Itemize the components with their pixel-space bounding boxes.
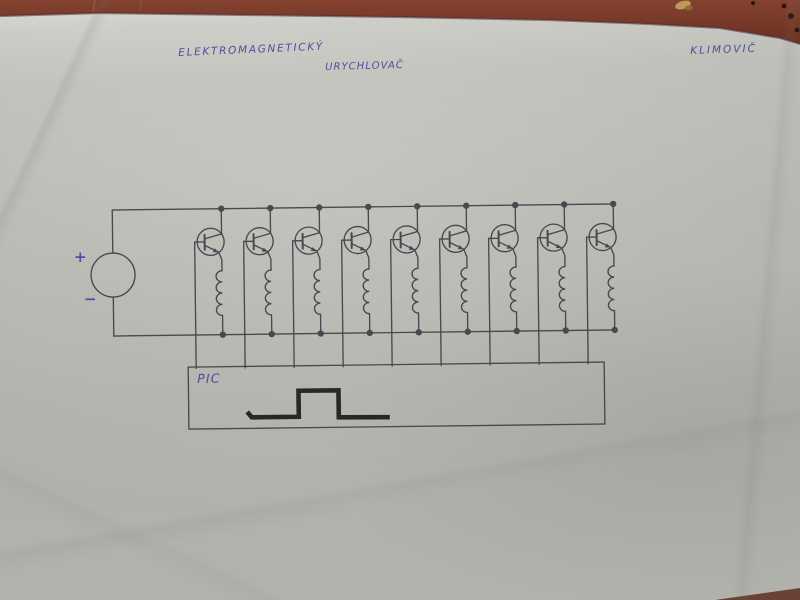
junction-dot-bottom [612, 327, 618, 333]
coil-electromagnet [265, 270, 272, 334]
junction-dot-bottom [514, 328, 520, 334]
junction-dot-bottom [563, 327, 569, 333]
bottom-supply-rail [114, 330, 615, 336]
transistor-stage-2 [243, 205, 275, 368]
author-name: KLIMOVIČ [690, 43, 757, 57]
coil-electromagnet [461, 268, 468, 332]
transistor-collector-stroke [205, 234, 221, 239]
transistor-collector-stroke [597, 229, 613, 234]
voltage-source [90, 210, 136, 337]
transistor-collector-stroke [303, 233, 319, 238]
title-line2: URYCHLOVAČ [325, 60, 404, 73]
table-mark [751, 1, 755, 5]
coil-electromagnet [412, 268, 419, 332]
transistor-collector-stroke [499, 231, 515, 236]
base-drive-wire [195, 242, 197, 368]
schematic-drawing [0, 0, 800, 600]
coil-electromagnet [216, 271, 223, 335]
transistor-stage-7 [488, 202, 520, 365]
base-drive-wire [293, 241, 295, 367]
junction-dot-bottom [220, 331, 226, 337]
table-mark [782, 4, 787, 9]
base-drive-wire [244, 241, 246, 367]
photo-of-schematic: ELEKTROMAGNETICKÝ URYCHLOVAČ KLIMOVIČ + … [0, 0, 800, 600]
emitter-wire [219, 252, 222, 271]
debris-on-table [685, 6, 693, 11]
junction-dot-bottom [269, 331, 275, 337]
base-drive-wire [538, 238, 540, 364]
emitter-wire [415, 250, 418, 269]
emitter-wire [464, 249, 467, 268]
transistor-stage-5 [390, 203, 422, 366]
coil-electromagnet [608, 266, 615, 330]
table-surface [0, 0, 800, 44]
source-minus-label: − [84, 290, 97, 308]
pic-label: PIC [197, 371, 221, 386]
junction-dot-bottom [318, 330, 324, 336]
table-corner-bottom-right [715, 588, 800, 600]
top-supply-rail [112, 204, 613, 210]
emitter-wire [611, 247, 614, 266]
base-drive-wire [489, 238, 491, 364]
source-plus-label: + [74, 248, 87, 266]
transistor-collector-stroke [401, 232, 417, 237]
circuit-drawing [90, 201, 619, 431]
coil-electromagnet [314, 269, 321, 333]
emitter-wire [366, 250, 369, 269]
base-drive-wire [440, 239, 442, 365]
emitter-wire [513, 249, 516, 268]
table-mark [788, 13, 794, 19]
transistor-stage-1 [194, 205, 226, 368]
transistor-stage-8 [537, 201, 569, 364]
pulse-waveform-icon [247, 390, 390, 419]
junction-dot-bottom [465, 328, 471, 334]
transistor-stage-9 [586, 201, 618, 364]
coil-electromagnet [510, 267, 517, 331]
transistor-collector-stroke [450, 231, 466, 236]
transistor-collector-stroke [352, 232, 368, 237]
emitter-wire [562, 248, 565, 267]
base-drive-wire [587, 237, 589, 363]
source-top-lead [112, 210, 113, 253]
transistor-stage-4 [341, 204, 373, 367]
coil-electromagnet [363, 269, 370, 333]
junction-dot-bottom [416, 329, 422, 335]
emitter-wire [268, 252, 271, 271]
transistor-stage-6 [439, 202, 471, 365]
emitter-wire [317, 251, 320, 270]
junction-dot-bottom [367, 330, 373, 336]
dc-source-circle [91, 253, 136, 298]
transistor-stage-3 [292, 204, 324, 367]
transistor-collector-stroke [548, 230, 564, 235]
base-drive-wire [391, 240, 393, 366]
table-mark [795, 28, 800, 33]
transistor-collector-stroke [254, 234, 270, 239]
coil-electromagnet [559, 266, 566, 330]
base-drive-wire [342, 240, 344, 366]
